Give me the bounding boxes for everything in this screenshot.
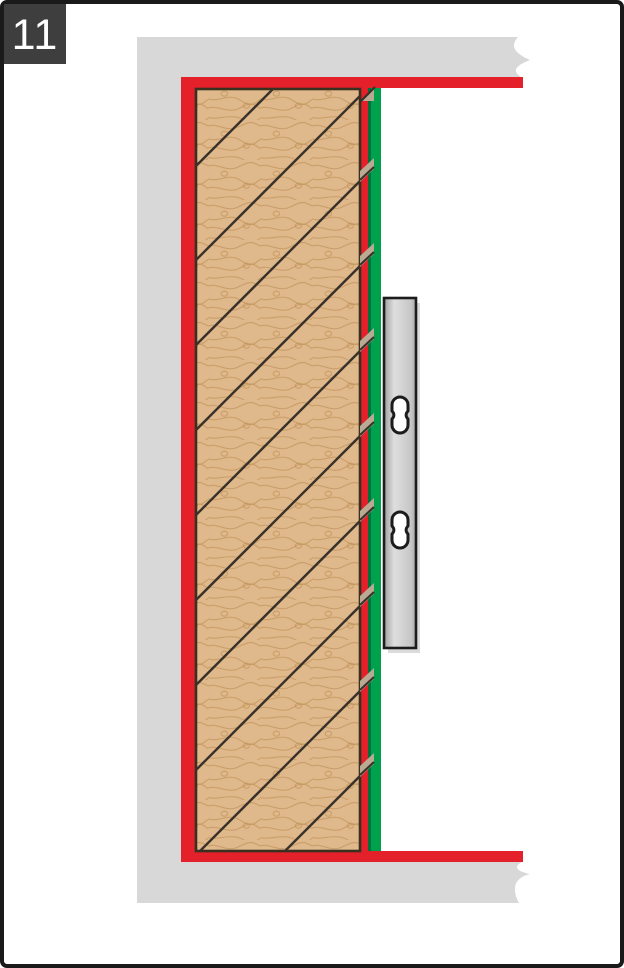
installation-diagram [0,0,624,968]
seal-bottom [181,851,523,862]
bracket-slot-hole [392,397,408,433]
seal-top [181,77,523,88]
instruction-page: 11 [0,0,624,968]
step-number-badge: 11 [4,4,66,64]
gasket-strip-green [368,88,381,851]
mounting-bracket [384,298,420,653]
seal-left [181,77,195,862]
gasket-edge-dark [368,88,372,851]
wall-bottom-band [137,862,530,903]
wall-left-column [137,37,181,903]
wood-panel [196,89,360,851]
bracket-plate [384,298,416,648]
wall-top-band [137,37,530,77]
bracket-slot-hole [392,512,408,548]
step-number: 11 [12,14,59,57]
gasket-face [371,88,381,851]
